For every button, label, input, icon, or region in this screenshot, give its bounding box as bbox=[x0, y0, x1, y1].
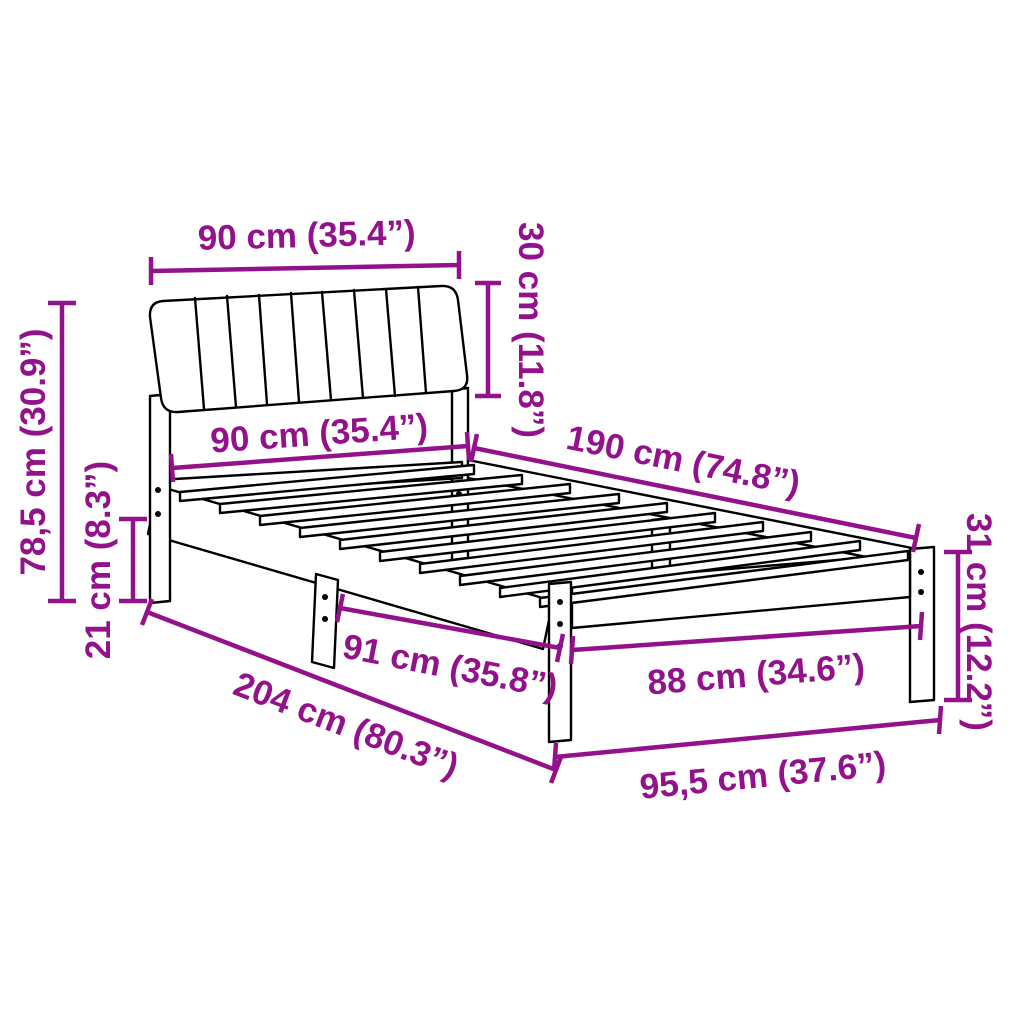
dim-leg-span-foot-label: 88 cm (34.6”) bbox=[646, 647, 866, 703]
foot-leg-near bbox=[549, 582, 571, 742]
screw-hole bbox=[155, 487, 161, 493]
dim-head-leg-height: 21 cm (8.3”) bbox=[79, 461, 147, 659]
screw-hole bbox=[322, 616, 328, 622]
dim-foot-leg-height: 31 cm (12.2”) bbox=[944, 513, 998, 731]
near-middle-leg bbox=[312, 574, 338, 668]
dim-headboard-height-label: 30 cm (11.8”) bbox=[511, 222, 550, 438]
headboard-cushion bbox=[150, 286, 467, 412]
headboard-left-leg bbox=[150, 394, 170, 603]
dim-total-width: 95,5 cm (37.6”) bbox=[554, 706, 941, 807]
dim-total-width-label: 95,5 cm (37.6”) bbox=[638, 744, 888, 807]
product-dimension-diagram: 90 cm (35.4”) 30 cm (11.8”) 90 cm (35.4”… bbox=[0, 0, 1024, 1024]
dim-foot-leg-height-label: 31 cm (12.2”) bbox=[959, 513, 998, 731]
screw-hole bbox=[557, 621, 563, 627]
dim-total-height-label: 78,5 cm (30.9”) bbox=[14, 328, 53, 575]
dim-total-length-label: 204 cm (80.3”) bbox=[228, 665, 464, 786]
dim-leg-span-foot: 88 cm (34.6”) bbox=[571, 612, 922, 703]
bed-diagram-svg: 90 cm (35.4”) 30 cm (11.8”) 90 cm (35.4”… bbox=[0, 0, 1024, 1024]
screw-hole bbox=[322, 594, 328, 600]
dim-head-leg-height-label: 21 cm (8.3”) bbox=[79, 461, 118, 659]
screw-hole bbox=[918, 589, 924, 595]
dim-headboard-height: 30 cm (11.8”) bbox=[475, 222, 550, 438]
dim-headboard-width: 90 cm (35.4”) bbox=[151, 213, 459, 285]
screw-hole bbox=[557, 599, 563, 605]
dim-total-height: 78,5 cm (30.9”) bbox=[14, 303, 76, 601]
screw-hole bbox=[155, 511, 161, 517]
dim-headboard-width-label: 90 cm (35.4”) bbox=[197, 213, 416, 258]
screw-hole bbox=[918, 569, 924, 575]
